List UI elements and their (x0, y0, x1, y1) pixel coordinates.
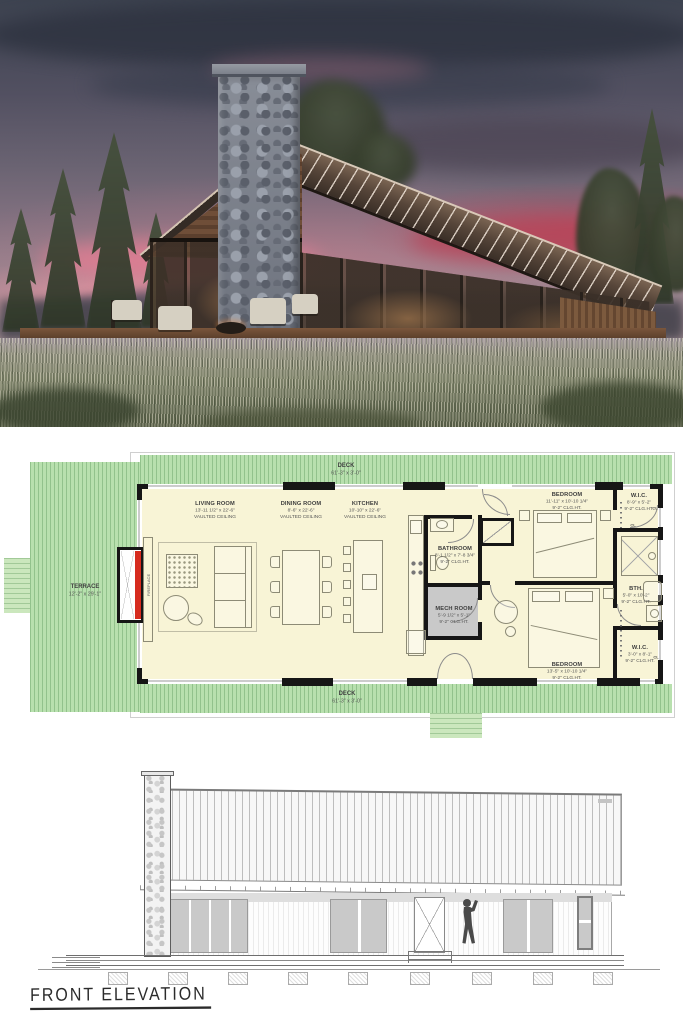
interior-wall (617, 626, 663, 630)
bath2-sink (650, 609, 659, 618)
fireplace-firebox (135, 551, 141, 619)
window (658, 508, 663, 527)
elevation-roof (150, 788, 622, 885)
sofa-seam (214, 573, 245, 574)
pillow (567, 513, 592, 523)
elevation-caption: FRONT ELEVATION (30, 985, 211, 1011)
pillow (565, 591, 593, 602)
dining-chair (322, 581, 332, 593)
exterior-photo (0, 0, 683, 427)
elevation-deck (66, 955, 624, 966)
wall-pier (283, 482, 335, 490)
lounge-chair (292, 294, 318, 314)
footing (108, 972, 128, 985)
glass-panel (330, 899, 387, 953)
glass-doors (170, 899, 248, 953)
window (658, 540, 663, 575)
armchair (166, 554, 198, 588)
bench (408, 951, 452, 963)
interior-wall (515, 581, 617, 585)
nightstand (603, 588, 614, 599)
sofa-seam (214, 600, 245, 601)
footing (288, 972, 308, 985)
wall-pier (403, 482, 445, 490)
deck-bottom-label: DECK61'-3" x 3'-0" (332, 689, 362, 705)
glass-panel (503, 899, 553, 953)
window (512, 484, 595, 489)
window (445, 484, 478, 489)
chimney-cap (212, 64, 306, 77)
interior-wall (482, 581, 490, 585)
wall-pier (597, 678, 640, 686)
living-room-label: LIVING ROOM13'-11 1/2" x 22'-6"VAULTED C… (194, 500, 236, 520)
dining-chair (270, 606, 280, 618)
floor-plan: FIREPLACE (0, 427, 683, 760)
shower-head (648, 552, 656, 560)
bar-stool (343, 563, 351, 572)
bar-stool (343, 546, 351, 555)
deck-top (140, 455, 672, 484)
terrace-label: TERRACE12'-2" x 29'-1" (69, 582, 101, 598)
dining-chair (322, 556, 332, 568)
deck-stoop (430, 713, 482, 738)
interior-wall (613, 626, 617, 684)
wic-1-label: W.I.C.8'-9" x 5'-2"9'-2" CLG.HT. (624, 492, 653, 512)
wall-pier (473, 678, 537, 686)
closet-label: CL (653, 655, 658, 660)
window (137, 500, 142, 548)
interior-wall (478, 583, 482, 600)
wic-2-label: W.I.C.3'-0" x 8'-1"9'-2" CLG.HT. (625, 644, 654, 664)
mech-room-label: MECH ROOM5'-9 1/2" x 5'-1"9'-2" CLG.HT. (435, 605, 472, 625)
dining-table (282, 550, 320, 625)
nightstand (519, 510, 530, 521)
tall-window (577, 896, 593, 950)
interior-wall (424, 636, 482, 640)
front-elevation: FRONT ELEVATION (0, 760, 683, 1024)
footing (472, 972, 492, 985)
deck-bottom (140, 684, 672, 713)
window (333, 679, 407, 684)
pillow (532, 591, 560, 602)
closet-rod (620, 610, 622, 660)
round-ottoman (505, 626, 516, 637)
wall-pier (595, 482, 623, 490)
round-chair (163, 595, 189, 621)
window (623, 484, 650, 489)
round-ottoman (494, 600, 518, 624)
ground-line (38, 969, 660, 970)
footing (348, 972, 368, 985)
elevation-chimney (144, 774, 171, 957)
kitchen-label: KITCHEN10'-10" x 22'-6"VAULTED CEILING (344, 500, 386, 520)
window (148, 679, 282, 684)
wall-pier (407, 678, 437, 686)
cooktop (409, 558, 423, 576)
refrigerator (406, 630, 426, 654)
bedroom-2-label: BEDROOM13'-5" x 10'-10 1/4"9'-2" CLG.HT. (547, 661, 587, 681)
dining-chair (270, 556, 280, 568)
pillow (537, 513, 562, 523)
human-figure (457, 898, 479, 954)
footing (533, 972, 553, 985)
patio-door-opening (437, 679, 473, 684)
footing (410, 972, 430, 985)
pin-image: FIREPLACE (0, 0, 683, 1024)
bar-stool (343, 614, 351, 623)
bath-2-label: BTH.5'-0" x 10'-2"9'-2" CLG.HT. (621, 585, 650, 605)
lounge-chair (112, 300, 142, 320)
interior-wall (617, 528, 663, 532)
window (148, 484, 283, 489)
footing (168, 972, 188, 985)
footing (228, 972, 248, 985)
fire-pit (216, 322, 246, 334)
window (335, 484, 403, 489)
closet-label: CL (652, 506, 657, 511)
nightstand (600, 510, 611, 521)
stone-chimney (218, 76, 300, 334)
closet-rod (620, 502, 622, 528)
window (640, 679, 655, 684)
footing (593, 972, 613, 985)
bathroom-label: BATHROOM8'-1 1/2" x 7'-8 3/4"9'-2" CLG.H… (435, 545, 475, 565)
dining-room-label: DINING ROOM8'-6" x 22'-6"VAULTED CEILING (280, 500, 322, 520)
elevation-chimney-cap (141, 771, 174, 776)
lounge-chair (250, 298, 286, 324)
dining-chair (322, 606, 332, 618)
closet (480, 518, 514, 546)
wall-pier (282, 678, 333, 686)
terrace-stoop (4, 558, 30, 613)
roof-annotation (598, 799, 612, 803)
closet-label: CL (630, 523, 635, 528)
island-sink (362, 574, 377, 590)
dining-chair (270, 581, 280, 593)
bar-stool (343, 580, 351, 589)
lounge-chair (158, 306, 192, 330)
kitchen-sink (410, 520, 422, 534)
bedroom-1-label: BEDROOM11'-11" x 10'-10 1/4"9'-2" CLG.HT… (546, 491, 588, 511)
deck-top-label: DECK61'-3" x 3'-0" (331, 461, 361, 477)
bar-stool (343, 597, 351, 606)
window (137, 622, 142, 668)
sofa-back (245, 546, 252, 628)
media-console (143, 537, 153, 642)
entry-door (414, 897, 445, 953)
vanity-sink (436, 520, 448, 529)
interior-wall (613, 487, 617, 510)
fireplace-hatch (121, 551, 134, 619)
